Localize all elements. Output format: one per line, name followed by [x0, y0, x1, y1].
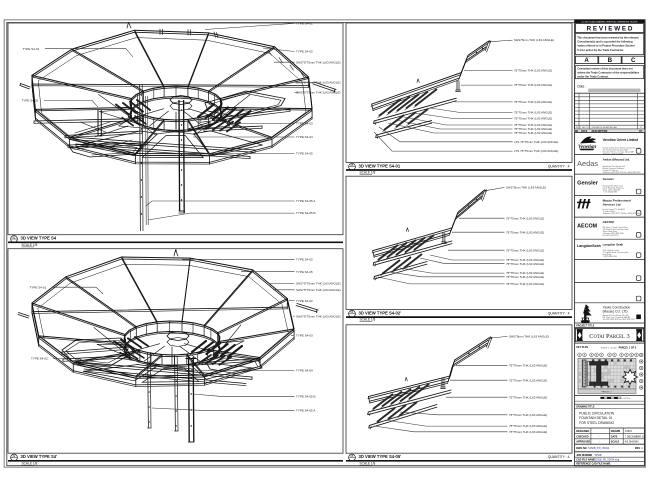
svg-text:SHS75*75mm THK (L63 ANGLE): SHS75*75mm THK (L63 ANGLE): [296, 91, 340, 95]
svg-text:GHKO: GHKO: [625, 430, 632, 433]
svg-text:T: (852) 2830 3500: T: (852) 2830 3500: [603, 256, 617, 258]
svg-text:3D VIEW TYPE S4': 3D VIEW TYPE S4': [21, 454, 58, 459]
svg-text:APPROVED: APPROVED: [576, 441, 590, 444]
svg-text:75*75mm THK (L63 ANGLE): 75*75mm THK (L63 ANGLE): [514, 69, 552, 73]
svg-text:A: A: [641, 446, 643, 450]
svg-text:C: C: [631, 57, 636, 64]
svg-text:PARCEL 2: PARCEL 2: [601, 391, 612, 394]
svg-text:3D VIEW TYPE S4-05': 3D VIEW TYPE S4-05': [359, 454, 402, 459]
svg-text:(Macau) CO. LTD.: (Macau) CO. LTD.: [603, 310, 629, 314]
svg-text:LangdonSeah: LangdonSeah: [577, 244, 601, 248]
svg-text:T + 81 3 6406 8866: T + 81 3 6406 8866: [603, 192, 618, 194]
svg-text:SHS75mm THK (L63 ANGLE): SHS75mm THK (L63 ANGLE): [509, 335, 549, 339]
svg-text:CAD FILE NAME: CAD FILE NAME: [576, 458, 595, 461]
svg-text:TYPE S4-02: TYPE S4-02: [296, 257, 313, 261]
svg-text:B: B: [608, 57, 613, 64]
svg-text:AS SHOWN: AS SHOWN: [625, 441, 639, 444]
svg-text:DESIGNED: DESIGNED: [576, 430, 589, 433]
svg-text:Consultant review of this: Consultant review of this document does …: [577, 67, 633, 71]
svg-text:relieve the Trade Contracto: relieve the Trade Contractor of the resp…: [577, 71, 640, 75]
svg-text:QUANTITY : 4: QUANTITY : 4: [548, 164, 570, 168]
svg-text:TYPE S4-01: TYPE S4-01: [296, 22, 313, 26]
svg-text:SCALE 1/8: SCALE 1/8: [360, 171, 376, 175]
svg-text:Date :: Date :: [577, 84, 586, 88]
svg-text:SHS75mm THK (L63 ANGLE): SHS75mm THK (L63 ANGLE): [514, 38, 554, 42]
svg-text:TYPE S4-03: TYPE S4-03: [296, 122, 313, 126]
svg-text:5.4 for action by the Tra: 5.4 for action by the Trade Contractor.: [577, 48, 624, 52]
svg-text:75*75mm THK (L63 ANGLE): 75*75mm THK (L63 ANGLE): [506, 275, 544, 279]
svg-text:DO NOT SCALE DRAWING. VERIFY A: DO NOT SCALE DRAWING. VERIFY ALL DIMENSI…: [582, 20, 639, 23]
svg-text:TYPE S4-02: TYPE S4-02: [296, 299, 313, 303]
svg-text:Telephone: (853) 2833 1055: Telephone: (853) 2833 1055 Fax: (853) 28…: [603, 172, 641, 174]
svg-text:SCALE 1/8: SCALE 1/8: [22, 243, 38, 247]
svg-text:Telephone: (853) 81 18888: Telephone: (853) 81 18888: [603, 154, 623, 156]
svg-text:DRAWN: DRAWN: [611, 430, 621, 433]
svg-text:REV: REV: [635, 447, 640, 450]
svg-text:75*75mm THK (L63 ANGLE): 75*75mm THK (L63 ANGLE): [509, 378, 547, 382]
svg-text:TYPE S4-05: TYPE S4-05: [296, 152, 313, 156]
svg-text:-: -: [599, 441, 600, 444]
svg-text:75*75mm THK (L63 ANGLE): 75*75mm THK (L63 ANGLE): [506, 248, 544, 252]
svg-text:REFERENCE CAD FILE NAME: REFERENCE CAD FILE NAME: [576, 463, 611, 466]
svg-text:Consultants(s) and is accorded: Consultants(s) and is accorded the follo…: [577, 40, 633, 44]
svg-text:PROJECT TITLE: PROJECT TITLE: [576, 325, 594, 327]
svg-text:75*75mm THK (L63 ANGLE): 75*75mm THK (L63 ANGLE): [509, 363, 547, 367]
svg-text:SHS75*75mm THK (L63 ANGLE): SHS75*75mm THK (L63 ANGLE): [296, 81, 340, 85]
svg-text:under the Trade Contract.: under the Trade Contract.: [577, 74, 609, 78]
svg-text:SCALE 1/8: SCALE 1/8: [360, 318, 376, 322]
svg-text:SHS75*75mm THK (L63 ANGLE): SHS75*75mm THK (L63 ANGLE): [296, 288, 340, 292]
svg-text:TYPE S4-02: TYPE S4-02: [31, 357, 48, 361]
svg-text:SCALE 1/8: SCALE 1/8: [22, 461, 38, 465]
svg-text:R E V I E W E D: R E V I E W E D: [587, 26, 633, 33]
svg-text:3D VIEW TYPE S4-01: 3D VIEW TYPE S4-01: [359, 163, 401, 168]
svg-text:7 DECEMBER 15: 7 DECEMBER 15: [625, 435, 645, 438]
svg-text:75*75mm THK (L63 ANGLE): 75*75mm THK (L63 ANGLE): [506, 230, 544, 234]
svg-text:Langdon Seah: Langdon Seah: [603, 242, 624, 246]
svg-text:SHS75mm THK (L63 ANGLE): SHS75mm THK (L63 ANGLE): [506, 186, 546, 190]
svg-text:LTS 75*75mm THK (L63 ANGLE): LTS 75*75mm THK (L63 ANGLE): [514, 140, 558, 144]
svg-text:FOR STEEL DRAWING: FOR STEEL DRAWING: [579, 421, 614, 425]
svg-text:3D VIEW TYPE S4-02': 3D VIEW TYPE S4-02': [359, 311, 402, 316]
svg-text:5150B_PD_05434: 5150B_PD_05434: [588, 446, 610, 450]
svg-text:TYPE S4-05: TYPE S4-05: [296, 270, 313, 274]
svg-text:SCALE 1 : 10 000: SCALE 1 : 10 000: [601, 346, 618, 349]
svg-text:75*75mm THK (L63 ANGLE): 75*75mm THK (L63 ANGLE): [506, 216, 544, 220]
svg-text:Telephone: (853) 2872 7208: Telephone: (853) 2872 7208 Fax: (853) 28…: [603, 213, 641, 215]
svg-text:TYPE S4-04: TYPE S4-04: [296, 135, 313, 139]
svg-text:Fax: (852) 3922 9797: Fax: (852) 3922 9797: [603, 235, 619, 237]
svg-text:QUANTITY : 4: QUANTITY : 4: [548, 312, 570, 316]
svg-text:SHS75*75mm THK (L63 ANGLE): SHS75*75mm THK (L63 ANGLE): [296, 60, 340, 64]
svg-text:75*75mm THK (L63 ANGLE): 75*75mm THK (L63 ANGLE): [506, 262, 544, 266]
svg-text:SHS75*75mm THK (L63 ANGLE): SHS75*75mm THK (L63 ANGLE): [296, 314, 340, 318]
svg-text:JOB NUMBER: JOB NUMBER: [576, 454, 592, 457]
svg-text:75*75mm THK (L63 ANGLE): 75*75mm THK (L63 ANGLE): [509, 395, 547, 399]
svg-text:75*75mm THK (L63 ANGLE): 75*75mm THK (L63 ANGLE): [514, 100, 552, 104]
svg-text:75*75mm THK (L63 ANGLE): 75*75mm THK (L63 ANGLE): [514, 111, 552, 115]
svg-text:TYPE S4-01: TYPE S4-01: [30, 285, 47, 289]
svg-text:TYPE S4-05 A: TYPE S4-05 A: [296, 408, 315, 412]
svg-text:COTAI PARCEL 3: COTAI PARCEL 3: [589, 333, 629, 340]
svg-text:AECOM: AECOM: [603, 220, 615, 224]
svg-text:PARCEL 1 OF 2: PARCEL 1 OF 2: [619, 346, 637, 349]
svg-text:TYPE S4-05 A: TYPE S4-05 A: [296, 199, 315, 203]
svg-text:AECOM: AECOM: [577, 224, 598, 230]
svg-text:75*75mm THK (L63 ANGLE): 75*75mm THK (L63 ANGLE): [509, 413, 547, 417]
svg-text:This document has been reviewe: This document has been reviewed by the r…: [577, 36, 638, 40]
svg-text:75*75mm THK (L63 ANGLE): 75*75mm THK (L63 ANGLE): [506, 282, 544, 286]
svg-text:3D VIEW TYPE S4: 3D VIEW TYPE S4: [21, 236, 57, 241]
svg-text:DATE: DATE: [611, 435, 618, 438]
svg-text:LTS 75*75mm THK (L63 ANGLE): LTS 75*75mm THK (L63 ANGLE): [514, 149, 558, 153]
svg-text:SHS75*75mm THK (L63 ANGLE): SHS75*75mm THK (L63 ANGLE): [296, 282, 340, 286]
svg-text:SCALE: SCALE: [611, 441, 620, 444]
svg-text:SCALE 1/8: SCALE 1/8: [360, 461, 376, 465]
svg-text:Services Ltd.: Services Ltd.: [603, 202, 622, 206]
svg-text:Tel: (853) 2835 5670 Fax: (85: Tel: (853) 2835 5670 Fax: (853) 2835 567…: [603, 319, 635, 321]
svg-text:75*75mm THK (L63 ANGLE): 75*75mm THK (L63 ANGLE): [514, 117, 552, 121]
svg-text:5150B_PD_05434.dwg: 5150B_PD_05434.dwg: [595, 458, 620, 461]
svg-text:FOUNTAIN DETAIL 01: FOUNTAIN DETAIL 01: [579, 416, 612, 420]
svg-text:DRAWING TITLE: DRAWING TITLE: [576, 405, 595, 408]
svg-text:Gensler: Gensler: [603, 177, 615, 181]
svg-text:DWG NO: DWG NO: [576, 447, 587, 450]
svg-text:75*75mm THK (L63 ANGLE): 75*75mm THK (L63 ANGLE): [514, 83, 552, 87]
svg-text:TYPE S4-01: TYPE S4-01: [23, 47, 40, 51]
svg-text:A: A: [584, 57, 589, 64]
svg-text:TYPE S4-04: TYPE S4-04: [296, 369, 313, 373]
svg-text:TYPE S4-02: TYPE S4-02: [22, 99, 39, 103]
svg-text:CHECKED: CHECKED: [576, 435, 589, 438]
svg-text:75*75mm THK (L63 ANGLE): 75*75mm THK (L63 ANGLE): [509, 424, 547, 428]
svg-text:-: -: [599, 435, 600, 438]
svg-text:TYPE S4-05 B: TYPE S4-05 B: [296, 211, 316, 215]
svg-text:75*75mm THK (L63 ANGLE): 75*75mm THK (L63 ANGLE): [509, 430, 547, 434]
svg-text:Venetian Orient Limited: Venetian Orient Limited: [603, 138, 639, 142]
svg-text:status referred to in Project: status referred to in Project Procedure …: [577, 44, 635, 48]
svg-text:KEY PLAN: KEY PLAN: [576, 346, 588, 349]
svg-text:0 10 20 m: 0 10 20 m: [623, 398, 631, 400]
svg-text:Aedas (Macau) Ltd.: Aedas (Macau) Ltd.: [603, 158, 631, 162]
svg-text:75*75mm THK (L63 ANGLE): 75*75mm THK (L63 ANGLE): [514, 131, 552, 135]
svg-text:5150B: 5150B: [595, 454, 602, 457]
svg-text:TYPE S4-02: TYPE S4-02: [296, 50, 313, 54]
svg-text:PUBLIC CIRCULATION: PUBLIC CIRCULATION: [579, 412, 615, 416]
svg-text:TYPE S4-03: TYPE S4-03: [296, 333, 313, 337]
svg-text:TYPE S4-05 B: TYPE S4-05 B: [296, 394, 316, 398]
svg-text:QUANTITY : 4: QUANTITY : 4: [548, 455, 570, 459]
svg-text:Gensler: Gensler: [577, 181, 599, 187]
svg-text:Aedas: Aedas: [577, 159, 598, 168]
